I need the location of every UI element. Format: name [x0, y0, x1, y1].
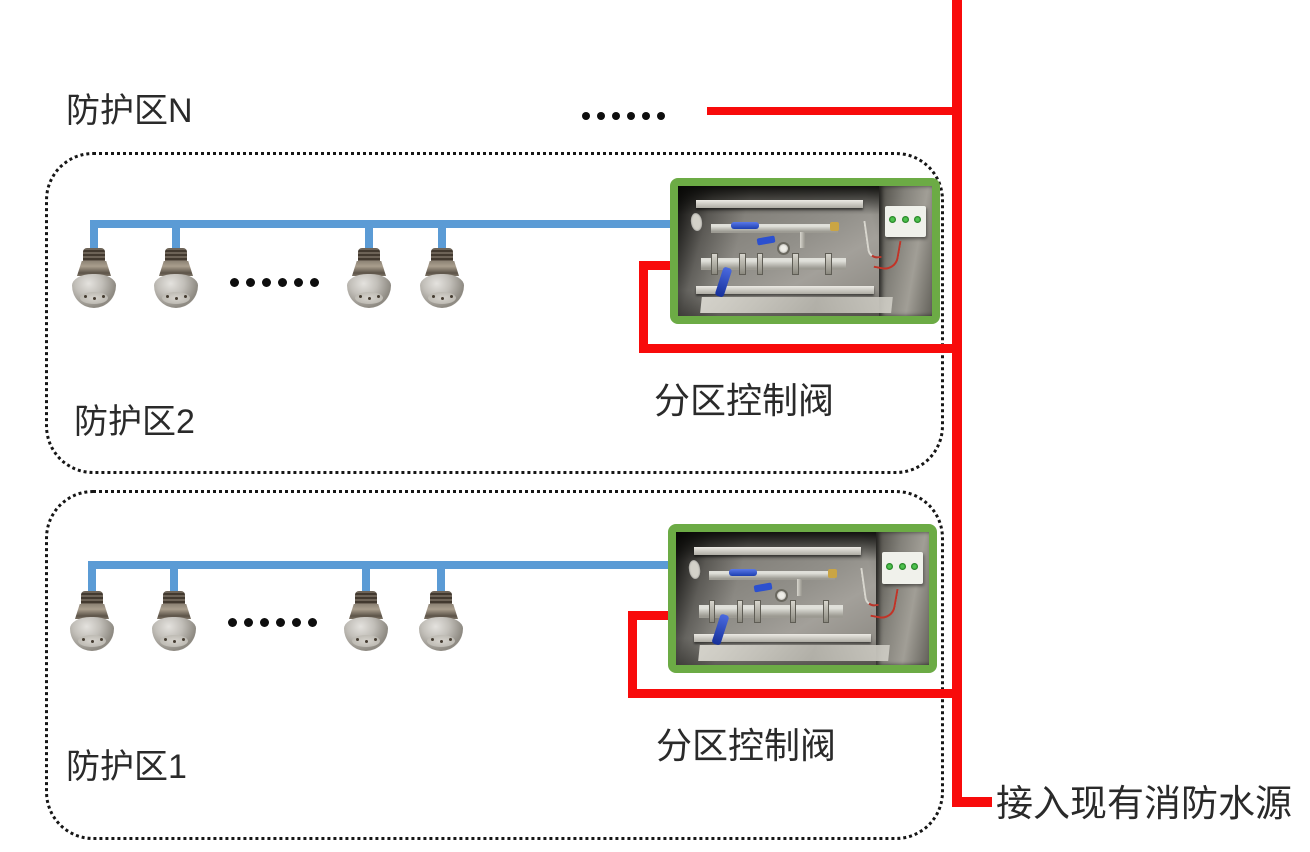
dot — [292, 618, 301, 627]
brass-fitting — [830, 222, 839, 231]
plastic-sheet — [700, 297, 892, 313]
pipe-flange — [737, 600, 744, 623]
nozzle-cap — [430, 591, 452, 606]
water-mist-nozzle — [419, 591, 463, 651]
pipe-flange — [754, 600, 761, 623]
nozzle-cap — [165, 248, 187, 263]
indicator-light-icon — [889, 216, 896, 223]
dot — [642, 112, 650, 120]
upper-manifold-pipe — [711, 224, 838, 233]
zone1-branch-to-riser-pipe — [628, 689, 962, 698]
pipe-flange — [757, 253, 764, 275]
nozzle-face — [160, 635, 188, 647]
pipe-stub — [800, 232, 805, 249]
dot — [278, 278, 287, 287]
water-mist-nozzle — [152, 591, 196, 651]
plastic-sheet — [698, 645, 889, 661]
box-top-rail — [696, 200, 864, 208]
water-mist-nozzle — [347, 248, 391, 308]
dot — [597, 112, 605, 120]
nozzle-face — [355, 292, 383, 304]
pressure-gauge-icon — [777, 242, 790, 255]
indicator-light-icon — [914, 216, 921, 223]
pipe-flange — [790, 600, 797, 623]
dot — [276, 618, 285, 627]
dot — [228, 618, 237, 627]
nozzle-face — [78, 635, 106, 647]
zone-control-valve-photo — [668, 524, 937, 673]
dot — [612, 112, 620, 120]
water-mist-nozzle — [70, 591, 114, 651]
zone1-branch-down-pipe — [628, 611, 637, 698]
zone2-branch-to-riser-pipe — [639, 344, 962, 353]
dot — [260, 618, 269, 627]
zone-n-branch-pipe — [707, 107, 962, 115]
zone-1-label: 防护区1 — [66, 748, 187, 787]
dot — [308, 618, 317, 627]
indicator-light-icon — [899, 563, 906, 570]
nozzle-face — [162, 292, 190, 304]
dot — [310, 278, 319, 287]
zone2-nozzle-branch-pipe — [90, 220, 672, 228]
dot — [244, 618, 253, 627]
nozzle-face — [427, 635, 455, 647]
blue-valve-handle — [731, 222, 759, 229]
ellipsis-icon — [582, 112, 672, 120]
pipe-flange — [711, 253, 718, 275]
water-mist-nozzle — [420, 248, 464, 308]
water-mist-nozzle — [72, 248, 116, 308]
upper-manifold-pipe — [709, 571, 836, 580]
zone-2-valve-label: 分区控制阀 — [654, 380, 834, 421]
nozzle-cap — [83, 248, 105, 263]
zone-control-valve-photo — [670, 178, 940, 324]
nozzle-face — [80, 292, 108, 304]
zone-n-label: 防护区N — [66, 92, 193, 131]
box-top-rail — [694, 547, 861, 555]
pipe-flange — [823, 600, 830, 623]
main-supply-riser-pipe — [952, 0, 962, 807]
fire-protection-diagram: 防护区N 防护区2 — [0, 0, 1310, 852]
valve-control-panel — [885, 206, 926, 237]
nozzle-face — [352, 635, 380, 647]
pipe-flange — [739, 253, 746, 275]
zone-1-valve-label: 分区控制阀 — [656, 725, 836, 766]
water-mist-nozzle — [154, 248, 198, 308]
valve-control-panel — [882, 552, 922, 584]
nozzle-cap — [81, 591, 103, 606]
nozzle-face — [428, 292, 456, 304]
pipe-flange — [792, 253, 799, 275]
pressure-gauge-icon — [775, 589, 788, 602]
indicator-light-icon — [911, 563, 918, 570]
water-mist-nozzle — [344, 591, 388, 651]
pipe-stub — [797, 579, 802, 596]
ellipsis-icon — [228, 618, 324, 627]
indicator-light-icon — [886, 563, 893, 570]
dot — [582, 112, 590, 120]
nozzle-cap — [163, 591, 185, 606]
zone2-branch-down-pipe — [639, 261, 648, 353]
dot — [657, 112, 665, 120]
nozzle-cap — [355, 591, 377, 606]
dot — [246, 278, 255, 287]
dot — [294, 278, 303, 287]
brass-fitting — [828, 569, 837, 578]
pipe-flange — [709, 600, 716, 623]
zone-2-label: 防护区2 — [74, 403, 195, 442]
nozzle-cap — [431, 248, 453, 263]
nozzle-cap — [358, 248, 380, 263]
pipe-flange — [825, 253, 832, 275]
blue-valve-handle — [729, 569, 757, 576]
dot — [627, 112, 635, 120]
dot — [262, 278, 271, 287]
indicator-light-icon — [902, 216, 909, 223]
dot — [230, 278, 239, 287]
ellipsis-icon — [230, 278, 326, 287]
water-source-label: 接入现有消防水源 — [996, 783, 1292, 826]
water-source-elbow-pipe — [952, 797, 992, 807]
zone1-nozzle-branch-pipe — [88, 561, 668, 569]
